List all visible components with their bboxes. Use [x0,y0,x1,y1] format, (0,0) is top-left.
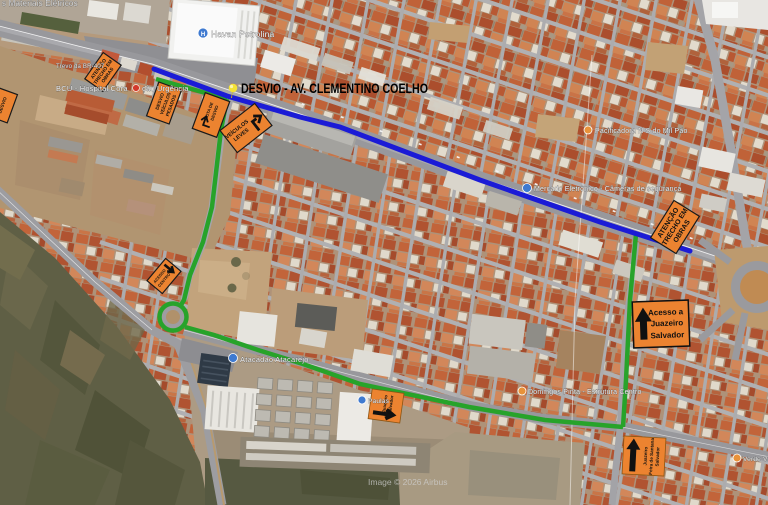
svg-text:s Materiais Elétricos: s Materiais Elétricos [2,0,78,8]
svg-text:Juazeiro: Juazeiro [651,318,684,328]
svg-text:ção Urgência: ção Urgência [142,84,189,93]
svg-text:Acesso a: Acesso a [648,307,684,317]
svg-text:H: H [201,32,205,38]
svg-text:Atacadão Atacarejo: Atacadão Atacarejo [240,355,309,364]
svg-text:DESVIO - AV. CLEMENTINO COELHO: DESVIO - AV. CLEMENTINO COELHO [241,80,428,96]
svg-text:Mercado Eletrônico - Câmeras d: Mercado Eletrônico - Câmeras de seguranç… [534,186,682,193]
svg-text:Salvador: Salvador [654,447,660,467]
svg-text:Pacificadora N S do Mil Pão: Pacificadora N S do Mil Pão [595,128,688,135]
svg-text:Havan Petrolina: Havan Petrolina [211,29,275,39]
svg-text:Paulas: Paulas [368,398,390,405]
svg-text:Trevo da BR-407: Trevo da BR-407 [56,64,105,70]
svg-text:Juazeiro: Juazeiro [643,446,649,465]
svg-text:Image © 2026 Airbus: Image © 2026 Airbus [368,477,448,487]
svg-text:Domingos Pinta - Estrutura Cen: Domingos Pinta - Estrutura Centro [528,389,642,396]
svg-text:Salvador: Salvador [650,330,684,340]
svg-text:BCU - Hospital Cora: BCU - Hospital Cora [56,84,128,93]
svg-text:Verde V: Verde V [743,456,768,463]
